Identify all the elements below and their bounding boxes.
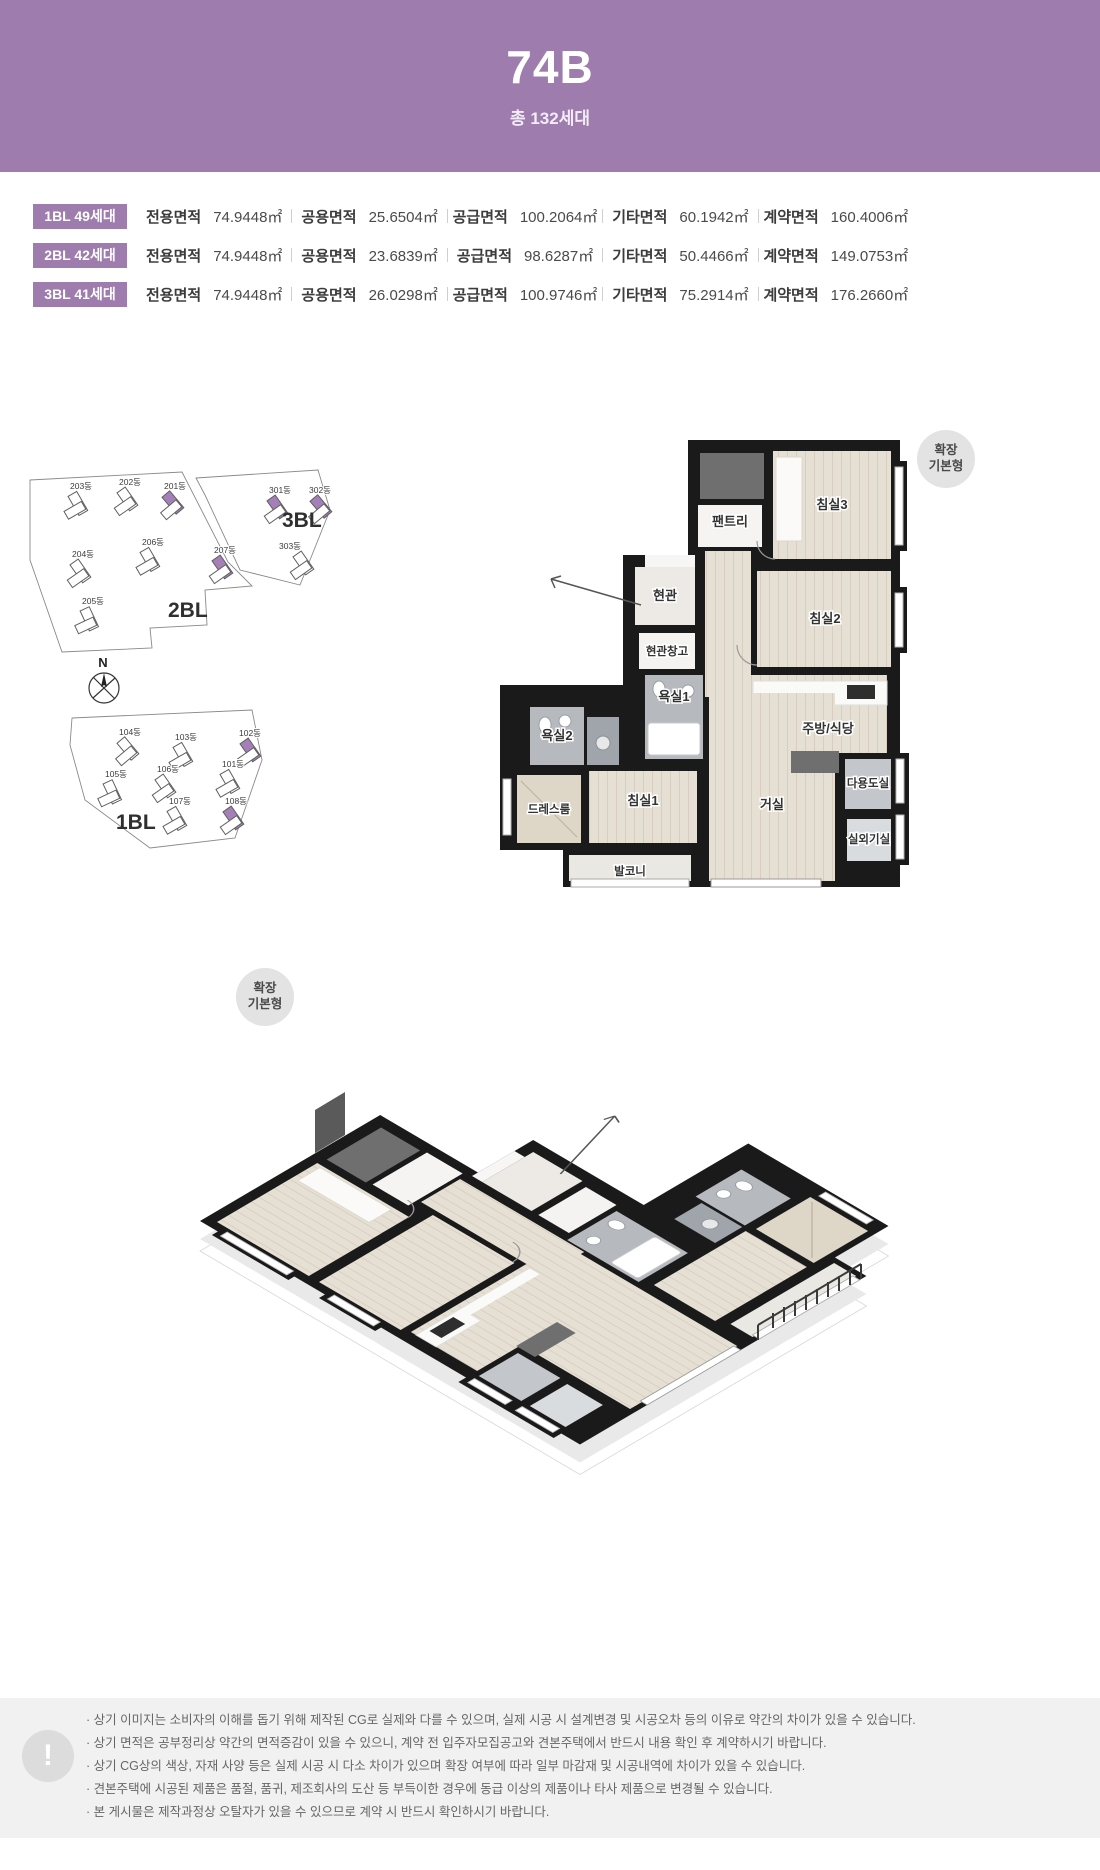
block-label-2bl: 2BL: [168, 599, 208, 622]
disclaimer-footer: ! · 상기 이미지는 소비자의 이해를 돕기 위해 제작된 CG로 실제와 다…: [0, 1698, 1100, 1838]
room-label-ac: 실외기실: [848, 832, 890, 846]
area-cell: 공용면적26.0298㎡: [292, 284, 446, 305]
entry-step: [645, 555, 695, 567]
room-label-utility: 다용도실: [847, 776, 889, 790]
iso-floorplan: [192, 1021, 920, 1449]
building: [211, 769, 240, 799]
bl-badge: 1BL 49세대: [33, 204, 127, 229]
iso-type-badge: 확장 기본형: [236, 968, 294, 1026]
area-row-3bl: 3BL 41세대 전용면적74.9448㎡ 공용면적26.0298㎡ 공급면적1…: [33, 281, 913, 307]
building: [131, 547, 160, 577]
building-label: 202동: [119, 477, 141, 487]
building-label: 303동: [279, 541, 301, 551]
kitchen-island: [791, 751, 839, 773]
exclamation-icon: !: [22, 1730, 74, 1782]
area-cell: 공용면적25.6504㎡: [292, 206, 446, 227]
building-label: 206동: [142, 537, 164, 547]
building: [154, 491, 184, 521]
site-plan: 203동 202동 201동 204동 206동 207동 205동 301동 …: [20, 465, 330, 860]
floor-plan-2d: 팬트리 침실3 현관 현관창고 욕실1 침실2 주방/식당 욕실2 드레스룸 침…: [495, 435, 915, 895]
unit-title: 74B: [506, 44, 593, 90]
unit-header: 74B 총 132세대: [0, 0, 1100, 172]
block-label-3bl: 3BL: [282, 509, 322, 532]
room-label-balcony: 발코니: [614, 864, 646, 878]
area-cell: 공급면적98.6287㎡: [448, 245, 602, 266]
building-label: 301동: [269, 485, 291, 495]
room-label-dress: 드레스룸: [528, 802, 571, 816]
building: [70, 607, 98, 636]
room-label-entry: 현관: [653, 588, 677, 603]
building-label: 103동: [175, 732, 197, 742]
compass-icon: N: [89, 655, 119, 703]
room-label-bed1: 침실1: [627, 793, 658, 808]
building: [109, 737, 139, 767]
building: [203, 555, 233, 585]
plan-type-badge: 확장 기본형: [917, 430, 975, 488]
room-label-pantry: 팬트리: [712, 514, 748, 529]
building: [93, 780, 121, 809]
building: [108, 487, 138, 517]
area-cell: 전용면적74.9448㎡: [137, 245, 291, 266]
room-label-bed3: 침실3: [816, 497, 847, 512]
building-label: 104동: [119, 727, 141, 737]
area-cell: 기타면적60.1942㎡: [603, 206, 757, 227]
area-cell: 기타면적50.4466㎡: [603, 245, 757, 266]
shower-drain: [596, 736, 610, 750]
building-label: 102동: [239, 728, 261, 738]
area-cell: 계약면적149.0753㎡: [759, 245, 913, 266]
closet: [776, 457, 802, 541]
disclaimer-notes: · 상기 이미지는 소비자의 이해를 돕기 위해 제작된 CG로 실제와 다를 …: [86, 1709, 1086, 1824]
unit-subtitle: 총 132세대: [510, 104, 590, 129]
building: [61, 559, 91, 589]
floor-plan-geometry: [500, 440, 909, 887]
disclaimer-line: · 견본주택에 시공된 제품은 품절, 품귀, 제조회사의 도산 등 부득이한 …: [86, 1778, 1086, 1801]
building-label: 203동: [70, 481, 92, 491]
building-label: 201동: [164, 481, 186, 491]
building-label: 108동: [225, 796, 247, 806]
room-label-bed2: 침실2: [809, 611, 840, 626]
compass-north-label: N: [98, 655, 107, 670]
building-label: 107동: [169, 796, 191, 806]
area-cell: 공급면적100.2064㎡: [448, 206, 602, 227]
building: [214, 806, 244, 836]
building-label: 105동: [105, 769, 127, 779]
building-label: 205동: [82, 596, 104, 606]
building-label: 204동: [72, 549, 94, 559]
floor-plan-3d: [0, 930, 1100, 1490]
room-label-entry-storage: 현관창고: [646, 644, 689, 658]
block-label-1bl: 1BL: [116, 811, 156, 834]
building: [284, 551, 314, 581]
bathtub: [648, 723, 700, 755]
bl-badge: 2BL 42세대: [33, 243, 127, 268]
building-label: 207동: [214, 545, 236, 555]
area-cell: 전용면적74.9448㎡: [137, 206, 291, 227]
room-label-bath1: 욕실1: [658, 689, 689, 704]
room-label-kitchen: 주방/식당: [802, 721, 853, 736]
area-cell: 공급면적100.9746㎡: [448, 284, 602, 305]
building-label: 106동: [157, 764, 179, 774]
room-label-bath2: 욕실2: [541, 728, 572, 743]
disclaimer-line: · 상기 이미지는 소비자의 이해를 돕기 위해 제작된 CG로 실제와 다를 …: [86, 1709, 1086, 1732]
cooktop: [847, 685, 875, 699]
unit-74b-page: 74B 총 132세대 1BL 49세대 전용면적74.9448㎡ 공용면적25…: [0, 0, 1100, 1870]
room-label-living: 거실: [760, 797, 784, 812]
area-cell: 기타면적75.2914㎡: [603, 284, 757, 305]
area-cell: 계약면적176.2660㎡: [759, 284, 913, 305]
disclaimer-line: · 상기 CG상의 색상, 자재 사양 등은 실제 시공 시 다소 차이가 있으…: [86, 1755, 1086, 1778]
building-label: 302동: [309, 485, 331, 495]
elevator-core: [700, 453, 764, 499]
building-label: 101동: [222, 759, 244, 769]
area-cell: 전용면적74.9448㎡: [137, 284, 291, 305]
building: [59, 491, 88, 521]
disclaimer-line: · 본 게시물은 제작과정상 오탈자가 있을 수 있으므로 계약 시 반드시 확…: [86, 1801, 1086, 1824]
bl-badge: 3BL 41세대: [33, 282, 127, 307]
sink: [559, 715, 571, 727]
area-cell: 계약면적160.4006㎡: [759, 206, 913, 227]
building: [158, 806, 187, 836]
area-cell: 공용면적23.6839㎡: [292, 245, 446, 266]
disclaimer-line: · 상기 면적은 공부정리상 약간의 면적증감이 있을 수 있으니, 계약 전 …: [86, 1732, 1086, 1755]
area-row-1bl: 1BL 49세대 전용면적74.9448㎡ 공용면적25.6504㎡ 공급면적1…: [33, 203, 913, 229]
area-row-2bl: 2BL 42세대 전용면적74.9448㎡ 공용면적23.6839㎡ 공급면적9…: [33, 242, 913, 268]
